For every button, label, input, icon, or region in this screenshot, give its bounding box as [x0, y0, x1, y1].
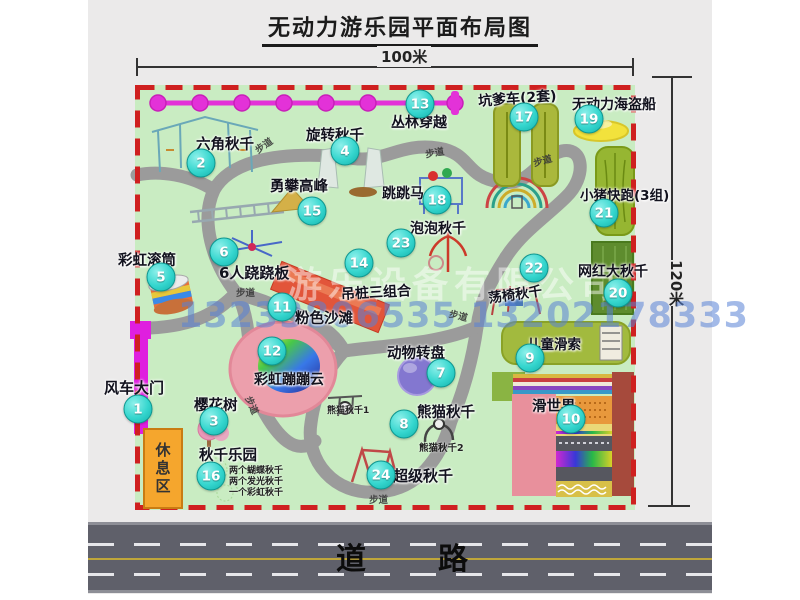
- badge-11: 11: [268, 293, 297, 322]
- label-super-swing: 超级秋千: [393, 465, 453, 486]
- badge-20: 20: [604, 279, 633, 308]
- label-panda-swing: 熊猫秋千: [417, 401, 475, 422]
- badge-15: 15: [298, 197, 327, 226]
- panda-swing-2-note: 熊猫秋千2: [419, 440, 464, 454]
- badge-21: 21: [590, 199, 619, 228]
- badge-24: 24: [367, 461, 396, 490]
- label-piggy-run: 小猪快跑(3组): [580, 184, 669, 204]
- road-label: 道路: [336, 534, 540, 578]
- width-dimension-label: 100米: [377, 46, 431, 67]
- page-title: 无动力游乐园平面布局图: [0, 10, 800, 42]
- badge-13: 13: [406, 90, 435, 119]
- footpath-label-7: 步道: [369, 492, 388, 506]
- badge-18: 18: [423, 186, 452, 215]
- badge-9: 9: [516, 344, 545, 373]
- label-hanging-pile: 吊桩三组合: [341, 280, 412, 304]
- badge-23: 23: [387, 229, 416, 258]
- badge-8: 8: [390, 410, 419, 439]
- badge-4: 4: [331, 137, 360, 166]
- footpath-label-4: 步道: [236, 285, 255, 299]
- rest-area: 休息区: [143, 428, 183, 509]
- label-bubble-swing: 泡泡秋千: [410, 218, 466, 238]
- badge-5: 5: [147, 263, 176, 292]
- badge-14: 14: [345, 249, 374, 278]
- slide-world-icon: [492, 372, 634, 497]
- badge-7: 7: [427, 359, 456, 388]
- badge-19: 19: [575, 105, 604, 134]
- panda-swing-1-note: 熊猫秋千1: [327, 403, 369, 416]
- label-climbing-peak: 勇攀高峰: [270, 175, 328, 196]
- label-pink-beach: 粉色沙滩: [295, 307, 353, 328]
- label-big-swing: 网红大秋千: [578, 261, 648, 281]
- label-jumping-horse: 跳跳马: [382, 183, 424, 203]
- badge-3: 3: [200, 407, 229, 436]
- badge-2: 2: [187, 149, 216, 178]
- swing-park-note-3: 一个彩虹秋千: [229, 485, 283, 498]
- badge-17: 17: [510, 103, 539, 132]
- label-rainbow-cloud: 彩虹蹦蹦云: [254, 369, 324, 389]
- badge-22: 22: [520, 254, 549, 283]
- badge-1: 1: [124, 395, 153, 424]
- badge-10: 10: [557, 405, 586, 434]
- badge-16: 16: [197, 462, 226, 491]
- park-layout-map: 无动力游乐园平面布局图 100米 120米 游乐设备有限公司 132338065…: [0, 0, 800, 600]
- badge-12: 12: [258, 337, 287, 366]
- badge-6: 6: [210, 238, 239, 267]
